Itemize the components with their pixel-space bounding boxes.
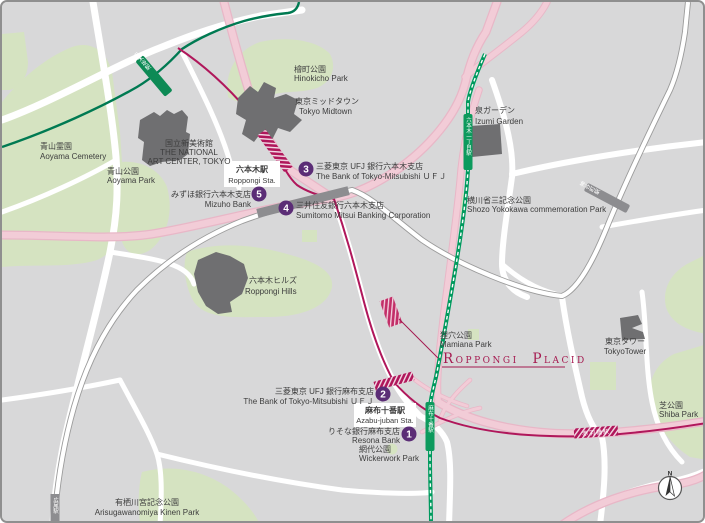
bank-marker-2-number: 2 (380, 390, 386, 401)
label-bank3-en: The Bank of Tokyo-Mitsubishi ＵＦＪ (316, 172, 447, 181)
label-shiba-ja: 芝公園 (659, 400, 683, 410)
roppongi-station-ja: 六本木駅 (236, 164, 269, 174)
park-small (302, 230, 317, 242)
label-aoyama-park-en: Aoyama Park (107, 176, 156, 185)
venue-name-text: Roppongi Placid (443, 351, 587, 367)
label-art-center-ja: 国立新美術館 (165, 138, 213, 148)
label-hinokicho-en: Hinokicho Park (294, 74, 349, 83)
label-arisugawa-ja: 有栖川宮記念公園 (115, 497, 179, 507)
bank-marker-1-number: 1 (406, 430, 412, 441)
compass-north-label: N (668, 471, 673, 478)
label-yokokawa-en: Shozo Yokokawa commemoration Park (467, 205, 607, 214)
label-bank2-ja: 三菱東京 UFJ 銀行麻布支店 (275, 386, 374, 396)
bank-marker-5-number: 5 (256, 190, 262, 201)
label-hills-ja: 六本木ヒルズ (249, 275, 297, 285)
label-bank3-ja: 三菱東京 UFJ 銀行六本木支店 (316, 161, 423, 171)
label-wickerwork-ja: 網代公園 (359, 444, 391, 454)
label-arisugawa-en: Arisugawanomiya Kinen Park (95, 508, 200, 517)
label-bank4-en: Sumitomo Mitsui Banking Corporation (296, 211, 430, 220)
label-hinokicho-ja: 檜町公園 (294, 64, 326, 74)
bank-marker-3-number: 3 (303, 165, 309, 176)
label-aoyama-park-ja: 青山公園 (107, 166, 139, 176)
venue-label: Roppongi Placid (442, 351, 587, 367)
station-hiroo: 広尾駅 (51, 494, 60, 523)
label-izumi-ja: 泉ガーデン (475, 105, 515, 115)
label-tokyo-tower-ja: 東京タワー (605, 336, 645, 346)
label-bank2-en: The Bank of Tokyo-Mitsubishi ＵＦＪ (243, 397, 374, 406)
label-midtown-ja: 東京ミッドタウン (295, 96, 359, 106)
label-art-center-en1: THE NATIONAL (160, 148, 218, 157)
label-shiba-en: Shiba Park (659, 410, 699, 419)
label-bank1-en: Resona Bank (352, 436, 401, 445)
park-shiba-small (590, 362, 616, 390)
station-roppongi-itchome-label: 六本木一丁目駅 (465, 116, 472, 157)
label-aoyama-cemetery-en: Aoyama Cemetery (40, 152, 106, 161)
label-yokokawa-ja: 横川省三記念公園 (467, 195, 531, 205)
azabujuban-station-en: Azabu-juban Sta. (356, 416, 414, 425)
station-azabujuban-namboku: 麻布十番駅 (426, 402, 435, 451)
roppongi-access-map: 乃木坂駅 六本木一丁目駅 神谷町駅 広尾駅 麻布十番駅 赤羽橋駅 (0, 0, 705, 523)
label-midtown-en: Tokyo Midtown (299, 107, 352, 116)
azabujuban-station-ja: 麻布十番駅 (364, 405, 406, 415)
label-tokyo-tower-en: TokyoTower (604, 347, 647, 356)
label-hills-en: Roppongi Hills (245, 287, 297, 296)
label-bank4-ja: 三井住友銀行六本木支店 (296, 200, 384, 210)
roppongi-station-en: Roppongi Sta. (228, 176, 276, 185)
label-wickerwork-en: Wickerwork Park (359, 454, 420, 463)
label-izumi-en: Izumi Garden (475, 117, 523, 126)
station-hiroo-label: 広尾駅 (52, 496, 59, 515)
bank-marker-4-number: 4 (283, 204, 289, 215)
label-bank5-ja: みずほ銀行六本木支店 (171, 189, 251, 199)
station-roppongi-itchome: 六本木一丁目駅 (464, 114, 473, 170)
building-izumi-garden (470, 124, 502, 157)
map-canvas: 乃木坂駅 六本木一丁目駅 神谷町駅 広尾駅 麻布十番駅 赤羽橋駅 (2, 2, 705, 523)
label-art-center-en2: ART CENTER, TOKYO (148, 157, 231, 166)
label-mamiana-ja: 狸穴公園 (440, 330, 472, 340)
label-bank5-en: Mizuho Bank (205, 200, 252, 209)
label-mamiana-en: Mamiana Park (440, 340, 493, 349)
label-aoyama-cemetery-ja: 青山霊園 (40, 141, 72, 151)
label-bank1-ja: りそな銀行麻布支店 (328, 426, 400, 436)
station-azabujuban-namboku-label: 麻布十番駅 (427, 404, 434, 434)
